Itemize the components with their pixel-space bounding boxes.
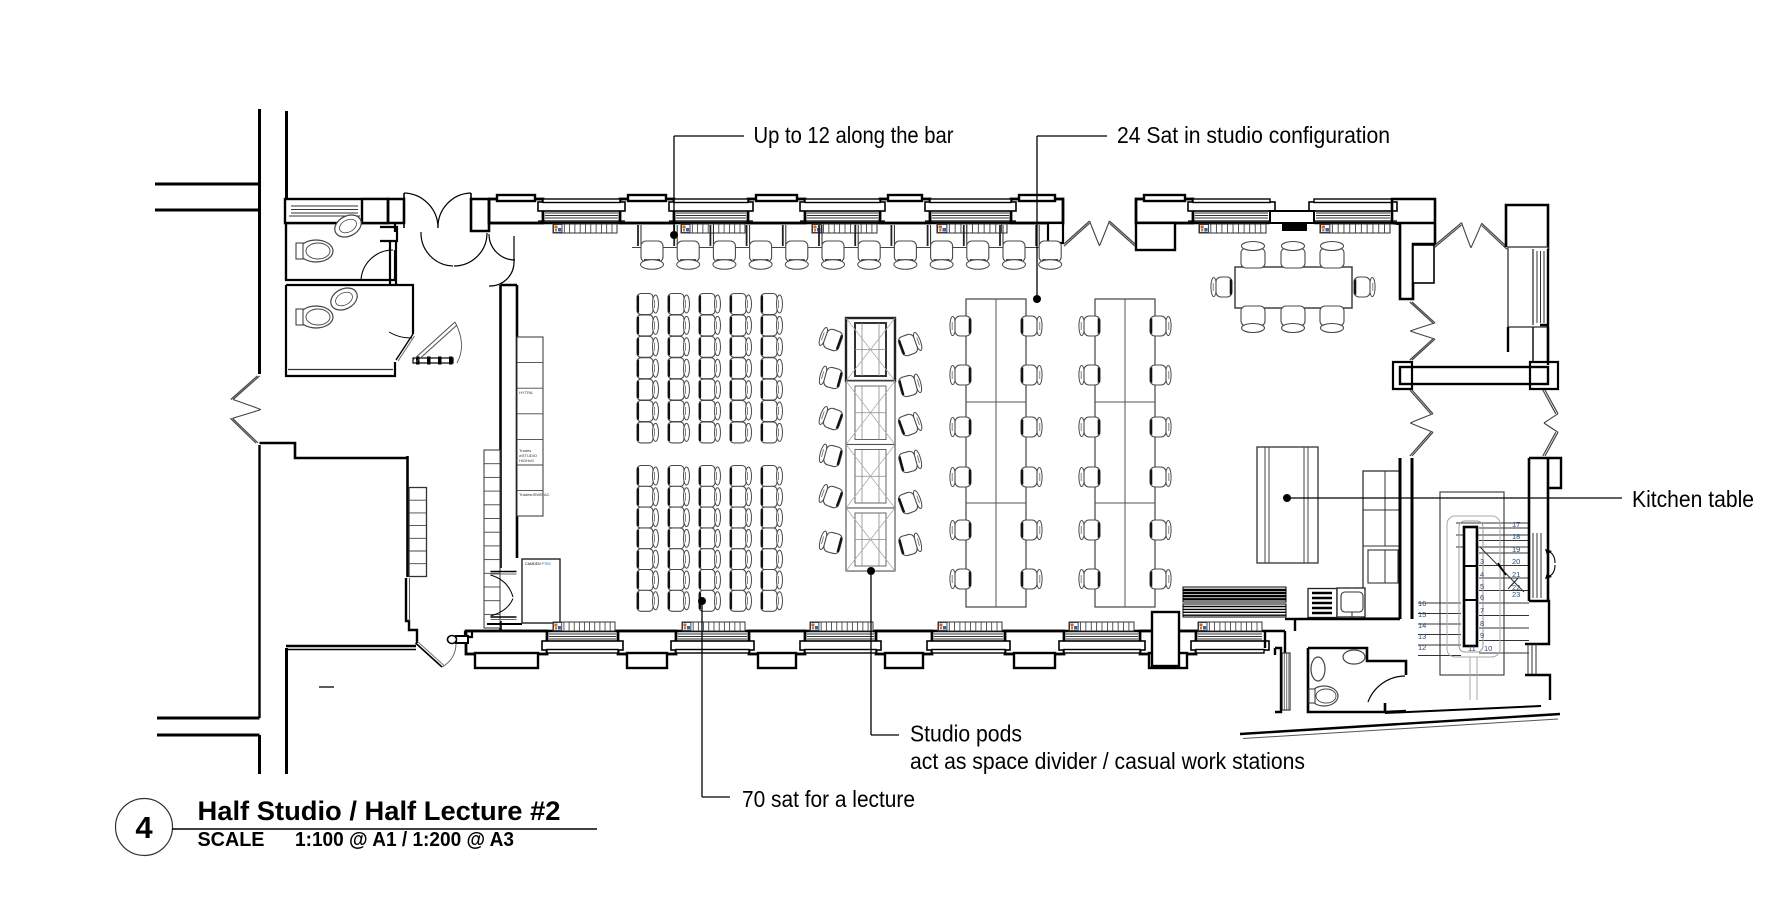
svg-text:17: 17 [1512, 520, 1520, 529]
svg-text:3: 3 [1480, 557, 1484, 566]
svg-text:6: 6 [1480, 593, 1484, 602]
svg-text:11: 11 [1468, 644, 1476, 653]
svg-text:Up to 12 along the bar: Up to 12 along the bar [754, 122, 954, 148]
svg-text:70 sat for a lecture: 70 sat for a lecture [742, 786, 915, 812]
svg-text:12: 12 [1418, 643, 1426, 652]
svg-text:9: 9 [1480, 631, 1484, 640]
svg-text:7: 7 [1480, 606, 1484, 615]
svg-text:16: 16 [1418, 599, 1426, 608]
svg-text:13: 13 [1418, 632, 1426, 641]
svg-text:Studio pods: Studio pods [910, 721, 1022, 747]
svg-text:8: 8 [1480, 619, 1484, 628]
svg-text:19: 19 [1512, 545, 1520, 554]
svg-text:HYTRA: HYTRA [519, 390, 533, 395]
svg-text:HIGHxG: HIGHxG [519, 458, 534, 463]
svg-text:Kitchen table: Kitchen table [1632, 486, 1754, 512]
svg-text:act as space divider / casual: act as space divider / casual work stati… [910, 748, 1305, 774]
svg-text:21: 21 [1512, 570, 1520, 579]
svg-text:4: 4 [1480, 570, 1484, 579]
svg-text:14: 14 [1418, 621, 1426, 630]
svg-text:SCALE: SCALE [198, 829, 265, 851]
svg-text:23: 23 [1512, 590, 1520, 599]
svg-text:10: 10 [1484, 644, 1492, 653]
svg-text:18: 18 [1512, 532, 1520, 541]
svg-text:TradesrtSWE.AC: TradesrtSWE.AC [519, 492, 550, 497]
svg-text:1:100 @ A1 / 1:200 @ A3: 1:100 @ A1 / 1:200 @ A3 [295, 829, 514, 851]
svg-text:CAMDEN PTBK: CAMDEN PTBK [525, 562, 552, 566]
svg-text:5: 5 [1480, 582, 1484, 591]
svg-text:Half Studio / Half Lecture #2: Half Studio / Half Lecture #2 [198, 796, 561, 826]
svg-text:20: 20 [1512, 557, 1520, 566]
svg-text:15: 15 [1418, 610, 1426, 619]
svg-text:24 Sat in studio configuration: 24 Sat in studio configuration [1117, 122, 1390, 148]
svg-text:4: 4 [135, 810, 153, 845]
